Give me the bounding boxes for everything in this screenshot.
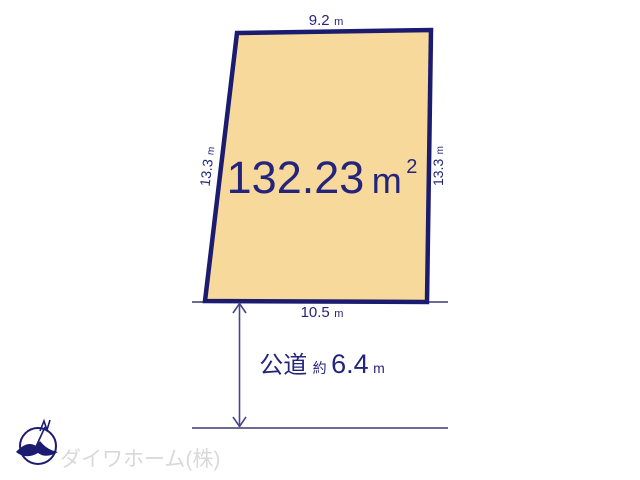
- area-unit: m: [372, 160, 402, 201]
- compass-north-icon: [16, 420, 58, 464]
- road-width-arrow: [233, 304, 246, 427]
- road-width-unit: m: [373, 360, 385, 376]
- road-label: 公道 約 6.4 m: [259, 349, 385, 379]
- left-edge-dimension: 13.3 m: [197, 146, 219, 188]
- company-name: ダイワホーム(株): [60, 448, 220, 471]
- road-type-label: 公道: [259, 352, 307, 379]
- site-plan-diagram: 132.23 m 2 9.2 m 13.3 m 13.3 m 10.5 m: [0, 0, 640, 480]
- top-edge-value: 9.2: [309, 12, 330, 29]
- road-width-value: 6.4: [331, 349, 369, 379]
- left-edge-unit: m: [205, 146, 217, 156]
- top-edge-unit: m: [334, 16, 343, 28]
- road-approx-label: 約: [313, 360, 327, 376]
- area-value: 132.23: [227, 152, 365, 203]
- left-edge-value: 13.3: [197, 158, 216, 187]
- parcel-area-label: 132.23 m 2: [227, 152, 418, 203]
- bottom-edge-value: 10.5: [301, 304, 330, 321]
- site-plan-page: 132.23 m 2 9.2 m 13.3 m 13.3 m 10.5 m: [0, 0, 640, 480]
- bottom-edge-unit: m: [334, 308, 343, 320]
- right-edge-dimension: 13.3 m: [430, 146, 447, 186]
- right-edge-unit: m: [435, 146, 446, 154]
- area-unit-superscript: 2: [406, 156, 417, 178]
- right-edge-value: 13.3: [430, 159, 446, 186]
- top-edge-dimension: 9.2 m: [309, 12, 343, 29]
- bottom-edge-dimension: 10.5 m: [301, 304, 344, 321]
